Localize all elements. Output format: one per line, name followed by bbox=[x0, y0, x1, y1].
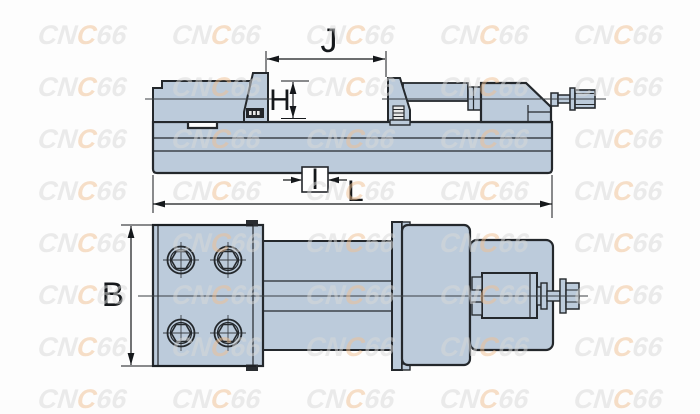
arrowhead-down bbox=[128, 353, 135, 365]
spring-flange bbox=[390, 120, 410, 125]
arrowhead-right bbox=[373, 56, 385, 63]
insert-detail bbox=[257, 111, 260, 115]
coupler bbox=[472, 302, 482, 315]
arrowhead-up bbox=[128, 226, 135, 238]
dim-label-l: L bbox=[347, 175, 364, 208]
insert-detail bbox=[249, 111, 252, 115]
jaw-clamp-tab bbox=[246, 365, 258, 372]
jaw-clamp-tab bbox=[246, 220, 258, 227]
arrowhead-left bbox=[153, 201, 165, 208]
dim-label-i: I bbox=[311, 163, 319, 196]
vise-technical-drawing: J H I bbox=[0, 0, 700, 400]
movable-jaw-carriage bbox=[153, 81, 250, 122]
coupler bbox=[472, 277, 482, 290]
arrowhead-left bbox=[267, 56, 279, 63]
drawing-canvas: J H I bbox=[0, 0, 700, 400]
insert-detail bbox=[253, 111, 256, 115]
dim-label-j: J bbox=[321, 22, 338, 60]
rear-block bbox=[481, 83, 551, 122]
dimension-j: J bbox=[266, 22, 386, 77]
plan-view: B bbox=[102, 220, 588, 371]
vise-bed bbox=[153, 122, 552, 173]
arrowhead-right bbox=[291, 177, 302, 183]
dim-label-h: H bbox=[269, 84, 291, 117]
arrowhead-right bbox=[540, 201, 552, 208]
dimension-h: H bbox=[269, 81, 309, 119]
slide-bar bbox=[403, 83, 468, 101]
side-view: J H I bbox=[145, 22, 606, 218]
cylinder-body bbox=[402, 225, 470, 365]
arrowhead-left bbox=[328, 177, 339, 183]
dimension-l: L bbox=[153, 175, 552, 218]
dim-label-b: B bbox=[102, 276, 125, 314]
